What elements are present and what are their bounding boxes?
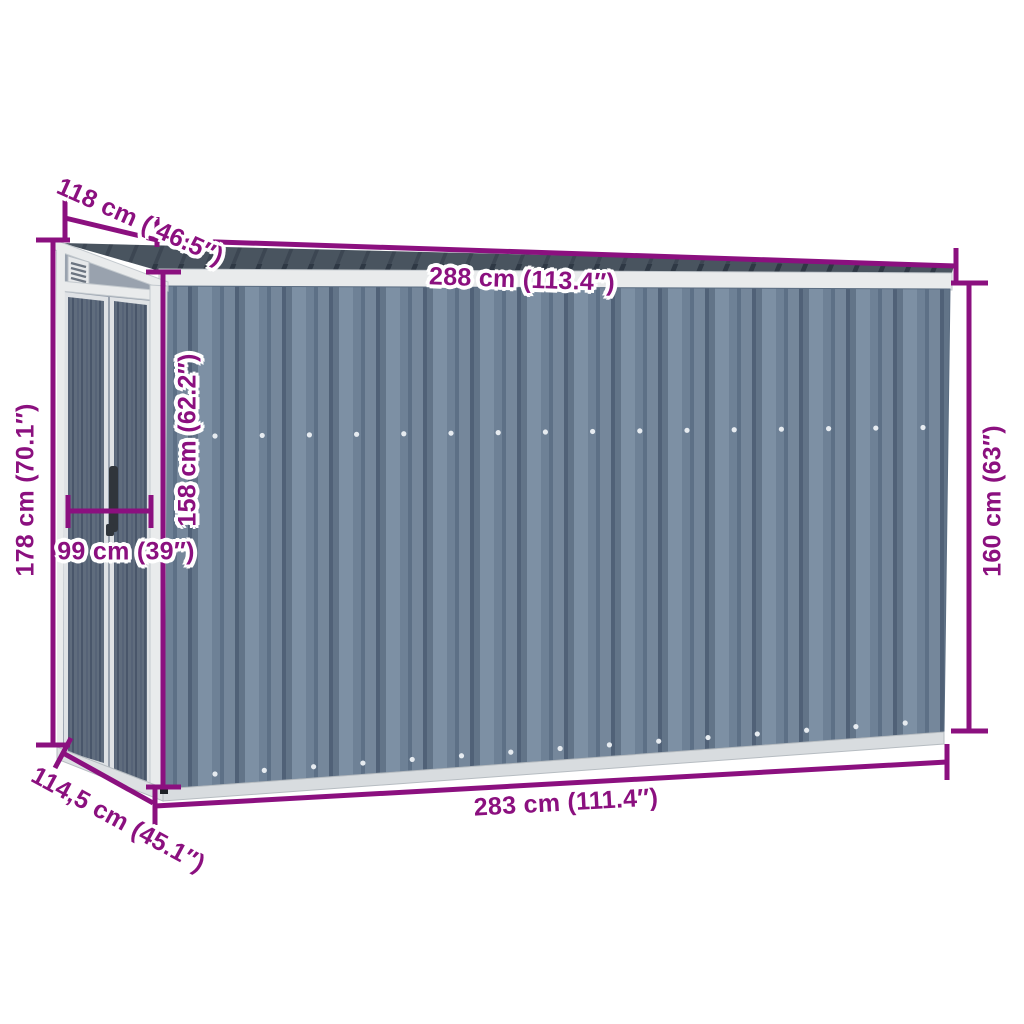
label-back-height: 178 cm (70.1″) (12, 403, 41, 576)
screw-dot (755, 731, 760, 736)
screw-dot (558, 746, 563, 751)
screw-dot (401, 431, 406, 436)
screw-dot (903, 720, 908, 725)
shed-dimension-drawing (0, 0, 1024, 1024)
screw-dot (920, 425, 925, 430)
sliding-door-left (64, 292, 108, 768)
label-right-wall-height: 160 cm (63″) (979, 425, 1008, 577)
screw-dot (262, 768, 267, 773)
screw-dot (260, 433, 265, 438)
screw-dot (826, 426, 831, 431)
screw-dot (873, 425, 878, 430)
screw-dot (496, 430, 501, 435)
screw-dot (212, 433, 217, 438)
screw-dot (459, 753, 464, 758)
screw-dot (607, 742, 612, 747)
screw-dot (853, 724, 858, 729)
screw-dot (804, 728, 809, 733)
screw-dot (543, 429, 548, 434)
screw-dot (307, 432, 312, 437)
screw-dot (448, 431, 453, 436)
screw-dot (410, 757, 415, 762)
screw-dot (508, 750, 513, 755)
screw-dot (590, 429, 595, 434)
screw-dot (360, 760, 365, 765)
screw-dot (705, 735, 710, 740)
label-door-width: 99 cm (39″) (57, 538, 195, 567)
screw-dot (684, 428, 689, 433)
diagram-canvas: 118 cm ( 46.5″) 288 cm (113.4″) 178 cm (… (0, 0, 1024, 1024)
label-front-wall-height: 158 cm (62.2″) (174, 353, 203, 526)
screw-dot (779, 427, 784, 432)
screw-dot (732, 427, 737, 432)
screw-dot (212, 771, 217, 776)
screw-dot (637, 428, 642, 433)
screw-dot (354, 432, 359, 437)
screw-dot (311, 764, 316, 769)
screw-dot (656, 739, 661, 744)
front-wall (161, 286, 950, 789)
